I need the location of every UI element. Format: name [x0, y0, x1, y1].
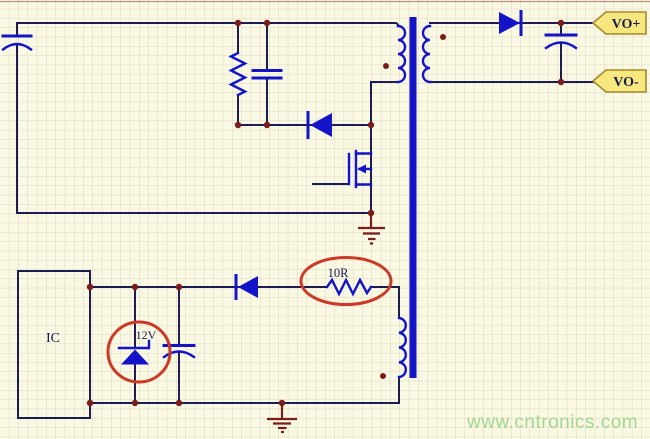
ic-label: IC — [46, 331, 60, 346]
junction-dot — [368, 122, 374, 128]
zener-voltage-label: 12V — [136, 328, 157, 342]
schematic-page: VO+ VO- IC 10R 12V — [0, 0, 650, 439]
vo-plus-label: VO+ — [612, 17, 641, 32]
junction-dot — [558, 79, 564, 85]
grid-background — [0, 0, 650, 439]
junction-dot — [235, 20, 241, 26]
junction-dot — [558, 20, 564, 26]
junction-dot — [176, 400, 182, 406]
junction-dot — [87, 284, 93, 290]
junction-dot — [235, 122, 241, 128]
junction-dot — [264, 122, 270, 128]
vo-plus-tag: VO+ — [593, 12, 646, 34]
junction-dot — [264, 20, 270, 26]
circuit-schematic: VO+ VO- IC 10R 12V — [0, 0, 650, 439]
junction-dot — [279, 400, 285, 406]
junction-dot — [176, 284, 182, 290]
junction-dot — [368, 210, 374, 216]
junction-dot — [87, 400, 93, 406]
vo-minus-label: VO- — [613, 75, 639, 90]
primary-phase-dot — [383, 63, 389, 69]
vo-minus-tag: VO- — [593, 70, 646, 92]
watermark-text: www.cntronics.com — [466, 412, 638, 433]
resistor-value-label: 10R — [328, 266, 350, 280]
secondary-phase-dot — [440, 34, 446, 40]
aux-phase-dot — [380, 373, 386, 379]
junction-dot — [132, 400, 138, 406]
junction-dot — [132, 284, 138, 290]
